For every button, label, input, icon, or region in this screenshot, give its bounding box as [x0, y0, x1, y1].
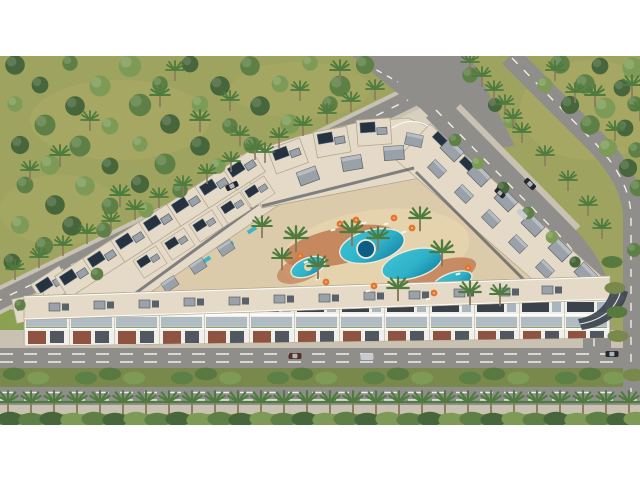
parasol	[465, 265, 472, 272]
median-bush	[195, 368, 217, 381]
tree	[580, 115, 600, 135]
tree	[240, 56, 260, 76]
median-bush	[99, 368, 121, 381]
tree	[75, 176, 95, 196]
median-bush	[435, 369, 457, 382]
median-bush	[291, 368, 313, 381]
street-tree	[546, 231, 559, 244]
tree	[11, 216, 29, 234]
tree	[70, 136, 91, 157]
roof-box-pair	[409, 291, 429, 299]
roof-box-pair	[364, 292, 384, 300]
tree	[62, 55, 77, 70]
roof-box	[341, 154, 363, 171]
median-bush	[555, 372, 577, 385]
roof-box-pair	[94, 301, 114, 309]
villa-roof	[313, 126, 351, 158]
tree	[155, 154, 176, 175]
tree	[592, 58, 609, 75]
tree	[40, 155, 60, 175]
roof-box-pair	[229, 297, 249, 305]
median-bush	[27, 372, 49, 385]
parasol	[371, 283, 378, 290]
median-bush	[459, 372, 481, 385]
tree	[537, 77, 552, 92]
median-bush	[387, 368, 409, 381]
roof-box-pair	[184, 298, 204, 306]
parasol	[391, 215, 398, 222]
parasol	[409, 225, 416, 232]
tree	[32, 77, 49, 94]
street-tree	[449, 134, 462, 147]
top-white-band	[0, 0, 640, 56]
car	[289, 353, 302, 359]
tree	[190, 136, 210, 156]
tree	[210, 76, 230, 96]
median-bush	[603, 372, 625, 385]
tree	[5, 55, 25, 75]
median-bush	[579, 368, 601, 381]
median-bush	[75, 372, 97, 385]
tree	[17, 177, 34, 194]
parasol	[323, 279, 330, 286]
tree	[96, 222, 111, 237]
median-bush	[339, 369, 361, 382]
tree	[595, 98, 616, 119]
tree	[160, 114, 180, 134]
tree	[132, 136, 147, 151]
tree	[302, 55, 317, 70]
parasol	[297, 253, 304, 260]
median-bush	[411, 372, 433, 385]
tree	[35, 115, 56, 136]
median-bush	[363, 372, 385, 385]
tree	[14, 299, 25, 310]
aerial-render-image	[0, 0, 640, 480]
tree	[599, 139, 617, 157]
parasol	[431, 290, 438, 297]
street-tree	[472, 157, 485, 170]
street-tree	[569, 256, 580, 267]
tree	[619, 159, 637, 177]
median-bush	[3, 368, 25, 381]
spa-pool	[357, 240, 375, 258]
tree	[561, 96, 579, 114]
roof-box-pair	[542, 286, 562, 294]
roof-box	[384, 145, 405, 160]
median-bush	[507, 372, 529, 385]
render-canvas	[0, 0, 640, 480]
median-bush	[602, 256, 623, 268]
median-bush	[123, 372, 145, 385]
tree	[102, 198, 119, 215]
tree	[129, 94, 151, 116]
median-bush	[171, 372, 193, 385]
tree	[102, 118, 119, 135]
bottom-white-band	[0, 425, 640, 480]
tree	[102, 158, 119, 175]
roof-box-pair	[274, 295, 294, 303]
tree	[91, 268, 104, 281]
tree	[272, 76, 289, 93]
tree	[35, 237, 53, 255]
roof-box-pair	[49, 303, 69, 311]
median-bush	[267, 372, 289, 385]
median-bush	[147, 369, 169, 382]
median-bush	[605, 282, 626, 294]
median-bush	[219, 372, 241, 385]
median-bush	[51, 369, 73, 382]
tree	[250, 96, 270, 116]
roof-box-pair	[139, 300, 159, 308]
grass-patch	[30, 80, 210, 160]
tree	[90, 76, 111, 97]
roof-box-pair	[319, 294, 339, 302]
tree	[45, 195, 65, 215]
villa-roof	[356, 118, 392, 146]
tree	[356, 56, 374, 74]
tree	[119, 55, 141, 77]
carriageway-north	[0, 348, 640, 368]
median-bush	[315, 372, 337, 385]
tree	[7, 96, 22, 111]
median-bush	[531, 369, 553, 382]
median-bush	[608, 330, 629, 342]
tree	[11, 136, 29, 154]
median-bush	[243, 369, 265, 382]
median-bush	[483, 368, 505, 381]
car	[361, 354, 374, 360]
median-bush	[607, 306, 628, 318]
car	[606, 351, 619, 357]
tree	[65, 96, 85, 116]
tree	[131, 175, 149, 193]
